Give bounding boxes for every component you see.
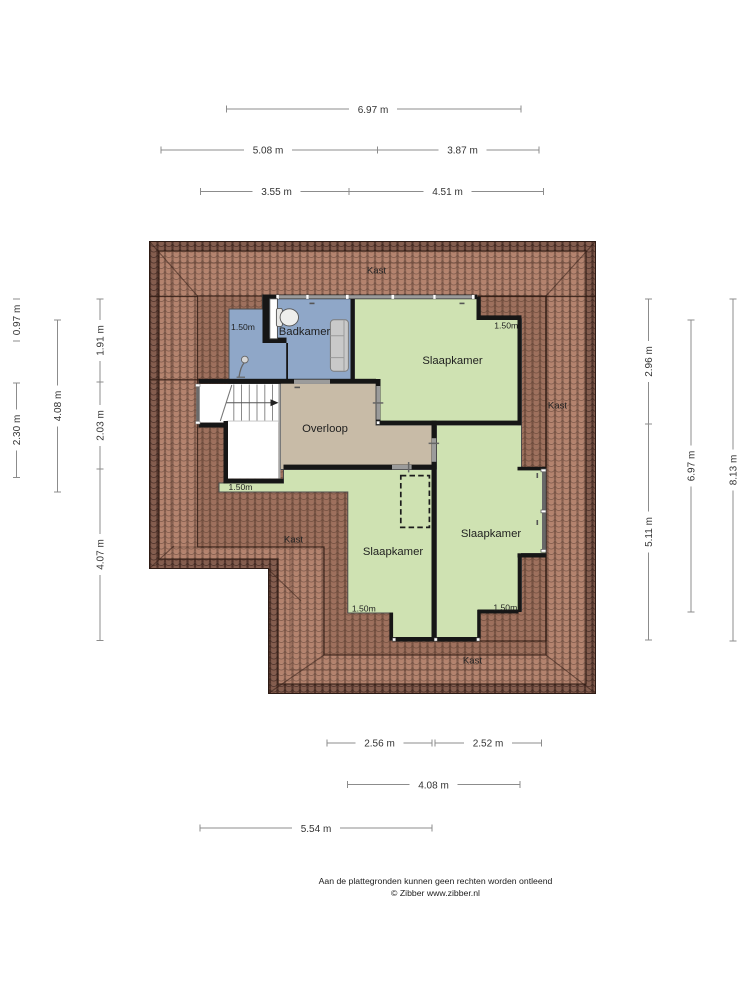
svg-text:Overloop: Overloop [302,423,348,435]
svg-text:2.52 m: 2.52 m [473,739,504,750]
svg-text:Kast: Kast [463,656,483,667]
svg-text:0.97 m: 0.97 m [12,305,23,336]
svg-text:Slaapkamer: Slaapkamer [422,355,483,367]
svg-text:Kast: Kast [548,401,568,412]
svg-text:2.96 m: 2.96 m [644,346,655,377]
svg-text:5.08 m: 5.08 m [253,146,284,157]
svg-text:4.08 m: 4.08 m [53,391,64,422]
svg-text:Badkamer: Badkamer [279,326,331,338]
svg-text:6.97 m: 6.97 m [358,105,389,116]
svg-text:3.87 m: 3.87 m [447,146,478,157]
svg-text:8.13 m: 8.13 m [729,455,740,486]
svg-text:Aan de plattegronden kunnen ge: Aan de plattegronden kunnen geen rechten… [319,876,553,886]
svg-text:4.51 m: 4.51 m [432,187,463,198]
svg-text:2.56 m: 2.56 m [364,739,395,750]
svg-text:Kast: Kast [367,266,387,277]
svg-text:3.55 m: 3.55 m [261,187,292,198]
svg-text:1.91 m: 1.91 m [96,325,107,356]
svg-text:4.08 m: 4.08 m [418,781,449,792]
svg-text:Slaapkamer: Slaapkamer [461,528,522,540]
svg-text:1.50m: 1.50m [493,602,517,612]
svg-text:1.50m: 1.50m [494,321,518,331]
svg-text:2.30 m: 2.30 m [12,415,23,446]
svg-text:6.97 m: 6.97 m [687,451,698,482]
svg-text:1.50m: 1.50m [231,322,255,332]
svg-text:Kast: Kast [284,535,304,546]
svg-text:5.54 m: 5.54 m [301,824,332,835]
svg-text:Slaapkamer: Slaapkamer [363,546,424,558]
svg-text:5.11 m: 5.11 m [644,517,655,547]
svg-text:1.50m: 1.50m [352,603,376,613]
svg-text:2.03 m: 2.03 m [96,410,107,441]
svg-text:1.50m: 1.50m [229,482,253,492]
svg-text:4.07 m: 4.07 m [96,539,107,570]
svg-text:© Zibber www.zibber.nl: © Zibber www.zibber.nl [391,888,480,898]
